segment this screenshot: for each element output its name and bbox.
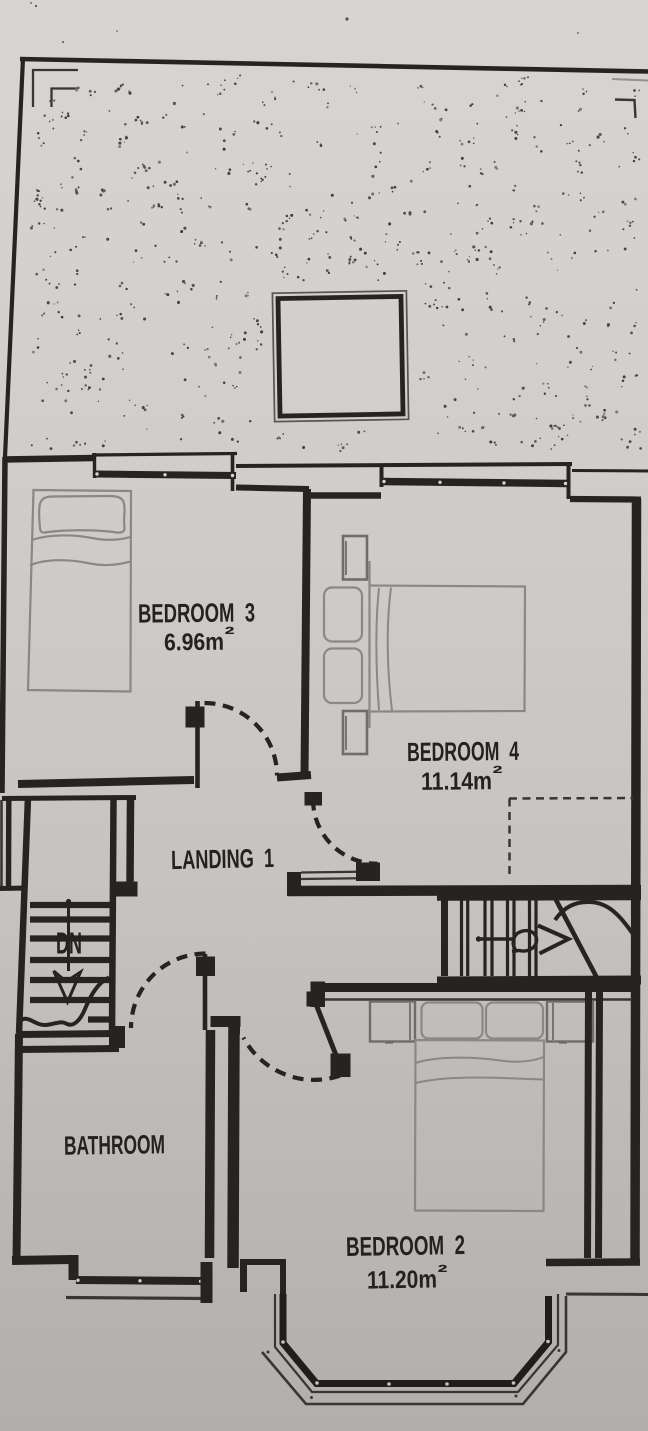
svg-text:BEDROOM 2: BEDROOM 2 bbox=[346, 1230, 466, 1262]
svg-text:DN: DN bbox=[56, 926, 82, 961]
svg-text:BEDROOM 3: BEDROOM 3 bbox=[138, 597, 255, 628]
svg-text:6.96m: 6.96m bbox=[164, 629, 224, 657]
svg-text:BATHROOM: BATHROOM bbox=[64, 1129, 165, 1160]
svg-text:²: ² bbox=[438, 1262, 448, 1284]
svg-text:²: ² bbox=[225, 624, 235, 646]
svg-text:11.20m: 11.20m bbox=[367, 1265, 437, 1294]
svg-text:²: ² bbox=[493, 763, 503, 785]
svg-text:11.14m: 11.14m bbox=[421, 767, 492, 796]
svg-text:LANDING 1: LANDING 1 bbox=[171, 843, 275, 875]
